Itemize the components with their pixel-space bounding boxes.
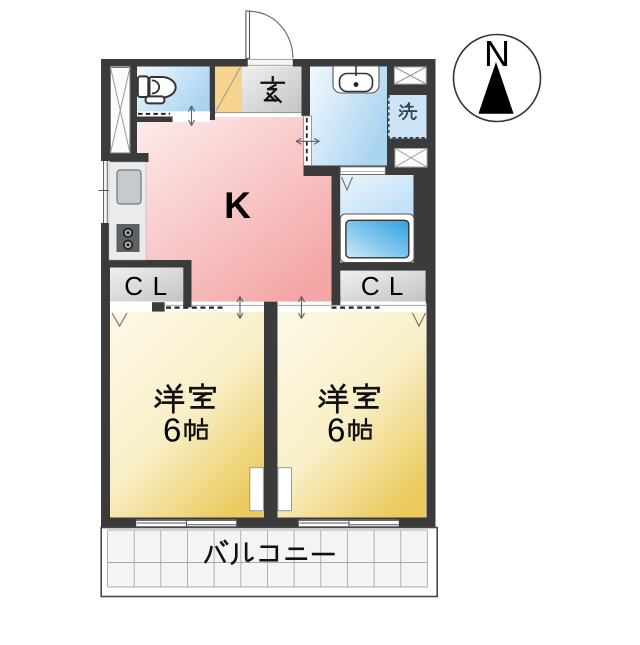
svg-text:K: K	[224, 185, 251, 226]
svg-text:C: C	[124, 271, 143, 301]
svg-text:6: 6	[327, 412, 345, 449]
svg-text:L: L	[389, 271, 403, 301]
svg-text:6: 6	[163, 412, 181, 449]
svg-text:L: L	[153, 271, 167, 301]
svg-text:C: C	[361, 271, 380, 301]
